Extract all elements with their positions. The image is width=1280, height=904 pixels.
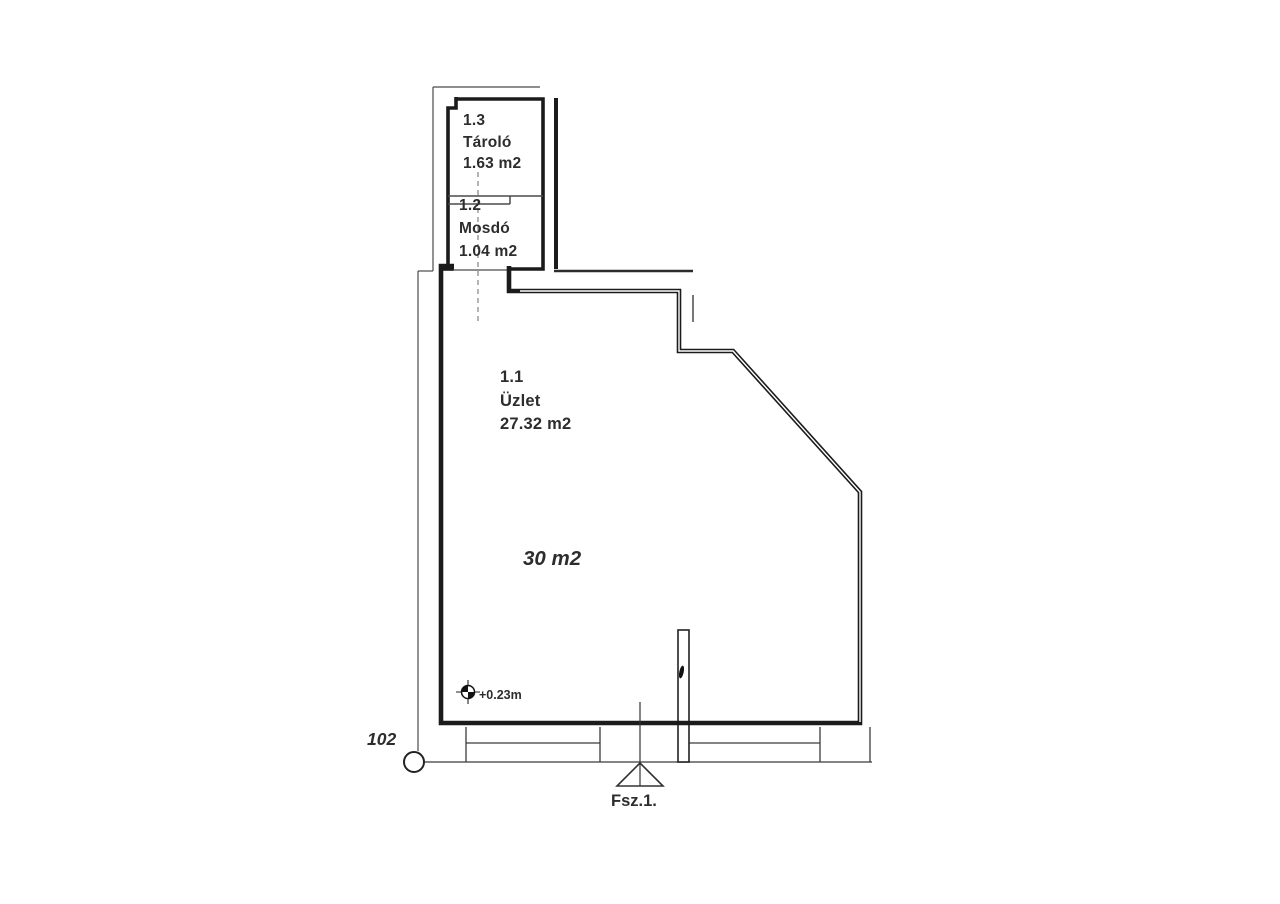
room-label-storage: 1.3 Tároló 1.63 m2 [463, 110, 521, 175]
room-label-washroom: 1.2 Mosdó 1.04 m2 [459, 194, 517, 263]
room-label-shop: 1.1 Üzlet 27.32 m2 [500, 366, 571, 437]
room-number: 1.2 [459, 194, 517, 217]
room-area: 1.04 m2 [459, 240, 517, 263]
room-number: 1.1 [500, 366, 571, 390]
floorplan-canvas: 1.3 Tároló 1.63 m2 1.2 Mosdó 1.04 m2 1.1… [0, 0, 1280, 904]
node-number-label: 102 [367, 729, 396, 750]
room-area: 27.32 m2 [500, 413, 571, 437]
room-name: Mosdó [459, 217, 517, 240]
room-name: Tároló [463, 132, 521, 154]
room-name: Üzlet [500, 390, 571, 414]
pillar [678, 630, 689, 762]
main-room-walls [441, 266, 860, 723]
room-number: 1.3 [463, 110, 521, 132]
floor-level-annotation: +0.23m [479, 688, 522, 702]
main-room-wall-inner-line [520, 291, 860, 722]
floorplan-drawing [0, 0, 1280, 904]
total-area-annotation: 30 m2 [523, 547, 581, 571]
node-circle-icon [404, 752, 424, 772]
entrance-triangle-icon [617, 702, 663, 786]
benchmark-icon [456, 680, 480, 704]
section-label: Fsz.1. [611, 792, 657, 811]
room-area: 1.63 m2 [463, 153, 521, 175]
storefront-window-band [424, 727, 872, 762]
